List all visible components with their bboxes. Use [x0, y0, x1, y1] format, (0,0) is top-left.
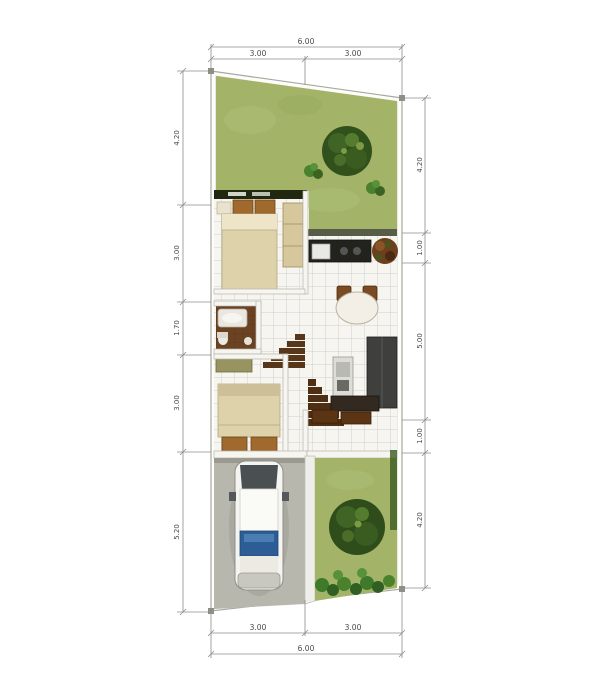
dining-table: [336, 292, 378, 324]
pillow: [222, 437, 247, 452]
potted-plant-icon: [372, 238, 398, 264]
dim-label-left-2: 3.00: [173, 245, 181, 261]
dim-label-bottom-seg2: 3.00: [345, 623, 362, 632]
dim-label-right-5: 4.20: [416, 512, 424, 528]
dim-label-left-1: 4.20: [173, 130, 181, 146]
stove-burner: [340, 247, 348, 255]
side-mirror: [229, 492, 236, 501]
pillow: [251, 437, 277, 452]
car-icon: [229, 460, 289, 596]
dim-label-right-4: 1.00: [416, 428, 424, 444]
pillow: [233, 200, 253, 214]
back-tree-icon: [322, 126, 372, 176]
trunk: [240, 556, 278, 573]
planter-box: [341, 412, 371, 424]
kitchen-counter: [309, 240, 371, 262]
windshield: [240, 465, 278, 489]
dim-label-left-4: 3.00: [173, 395, 181, 411]
washbasin: [244, 337, 252, 345]
front-garden: [315, 450, 397, 601]
dim-label-top-total: 6.00: [298, 37, 315, 46]
dim-label-top-seg1: 3.00: [250, 49, 267, 58]
dim-label-bottom-total: 6.00: [298, 644, 315, 653]
planter-box: [312, 410, 338, 423]
side-wall: [305, 456, 315, 604]
dim-label-left-3: 1.70: [173, 320, 181, 336]
hedge: [390, 450, 397, 530]
bumper: [238, 573, 280, 588]
wardrobe: [283, 203, 303, 267]
nightstand: [217, 202, 231, 214]
sink: [312, 244, 330, 259]
dim-label-right-1: 4.20: [416, 157, 424, 173]
stove-burner: [353, 247, 361, 255]
bathroom: [216, 306, 256, 349]
dim-label-left-5: 5.20: [173, 524, 181, 540]
wardrobe: [216, 358, 252, 372]
pillow: [255, 200, 275, 214]
dim-label-right-3: 5.00: [416, 333, 424, 349]
side-mirror: [282, 492, 289, 501]
carport: [214, 458, 305, 609]
window: [252, 192, 270, 196]
dim-label-top-seg2: 3.00: [345, 49, 362, 58]
floor-plan-svg: 6.00 3.00 3.00 3.00 3.00 6.00 4.20 3.00 …: [0, 0, 600, 674]
dim-label-right-2: 1.00: [416, 240, 424, 256]
floor-plan-page: 6.00 3.00 3.00 3.00 3.00 6.00 4.20 3.00 …: [0, 0, 600, 674]
window: [228, 192, 246, 196]
dim-label-bottom-seg1: 3.00: [250, 623, 267, 632]
car-roof: [240, 489, 278, 531]
bed-1: [217, 200, 277, 291]
bathtub-basin: [222, 313, 242, 323]
front-tree-icon: [329, 499, 385, 555]
toilet-tank: [217, 332, 228, 338]
dining-set: [336, 286, 378, 324]
counter: [331, 396, 379, 411]
